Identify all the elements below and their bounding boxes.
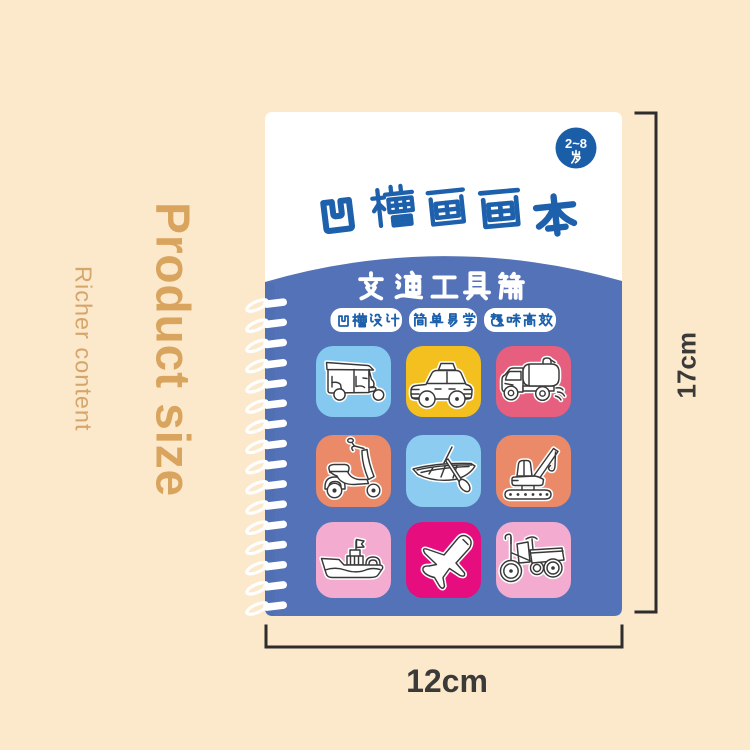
svg-text:Richer content: Richer content: [71, 266, 97, 432]
svg-text:17cm: 17cm: [672, 332, 702, 399]
svg-text:Product size: Product size: [146, 202, 199, 497]
svg-text:2~8: 2~8: [565, 136, 587, 151]
svg-text:12cm: 12cm: [406, 663, 488, 699]
